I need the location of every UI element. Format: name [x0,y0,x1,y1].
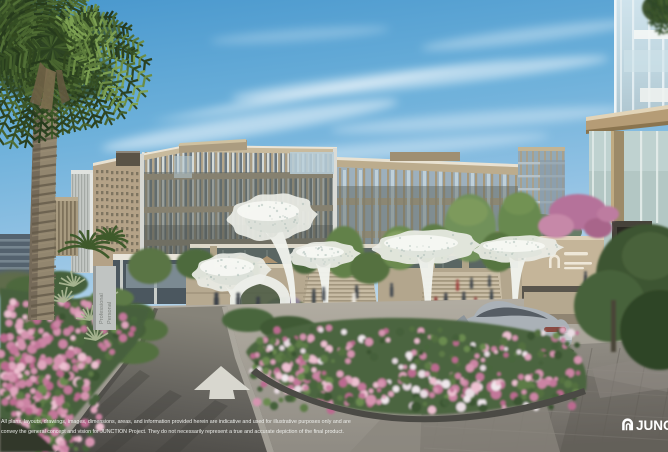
svg-text:JUNC: JUNC [636,418,668,433]
svg-text:Personal: Personal [107,302,113,324]
svg-text:convey the general concept and: convey the general concept and vision fo… [1,429,344,435]
svg-text:Professional: Professional [99,293,105,324]
svg-text:All plans, layouts, drawings,: All plans, layouts, drawings, images, di… [1,419,351,425]
